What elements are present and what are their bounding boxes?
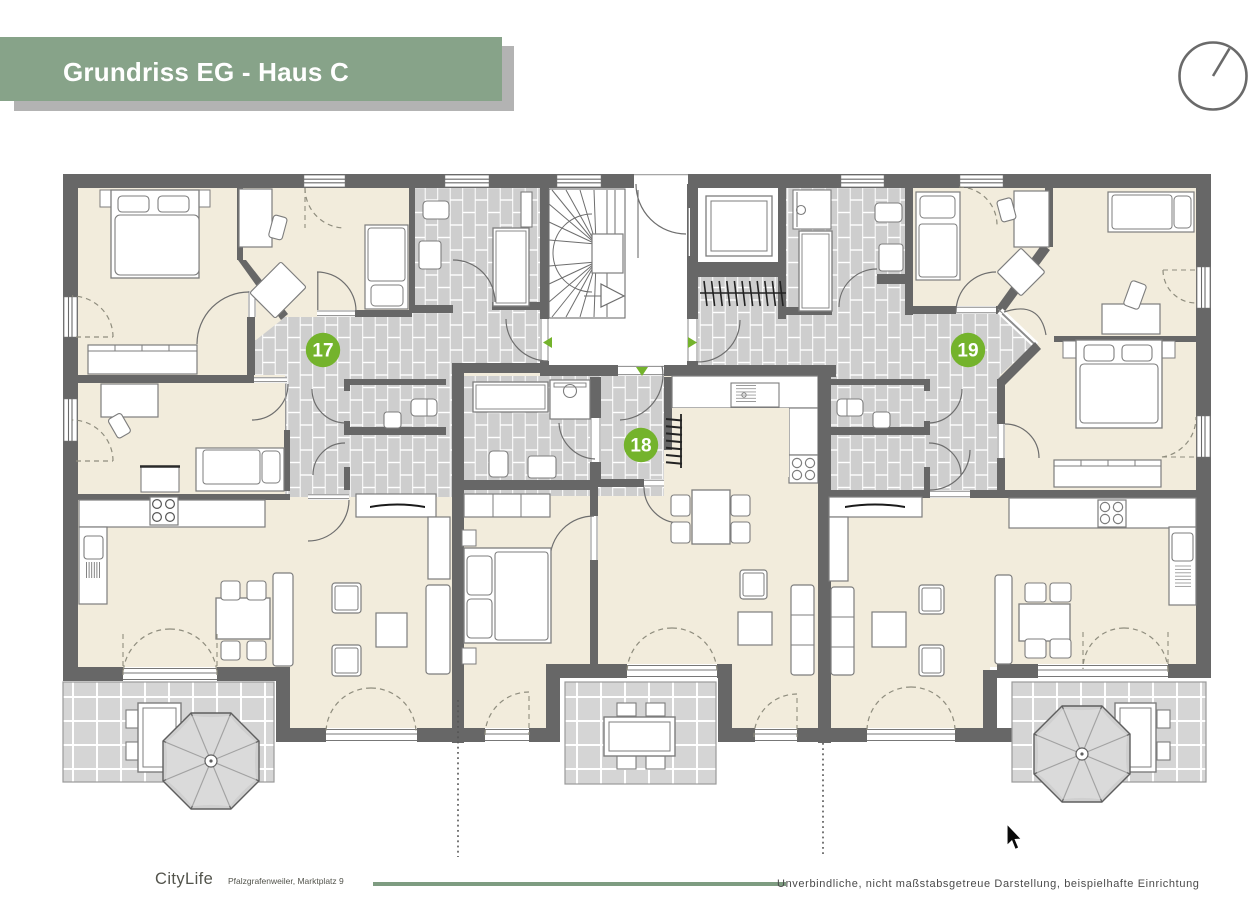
svg-text:18: 18 [630, 436, 651, 457]
svg-text:Grundriss EG - Haus C: Grundriss EG - Haus C [63, 57, 349, 87]
svg-text:Unverbindliche, nicht maßstabs: Unverbindliche, nicht maßstabsgetreue Da… [777, 878, 1200, 890]
svg-text:19: 19 [957, 341, 978, 362]
svg-text:17: 17 [312, 341, 333, 362]
svg-text:CityLife: CityLife [155, 870, 213, 888]
svg-text:Pfalzgrafenweiler, Marktplatz: Pfalzgrafenweiler, Marktplatz 9 [228, 876, 344, 886]
